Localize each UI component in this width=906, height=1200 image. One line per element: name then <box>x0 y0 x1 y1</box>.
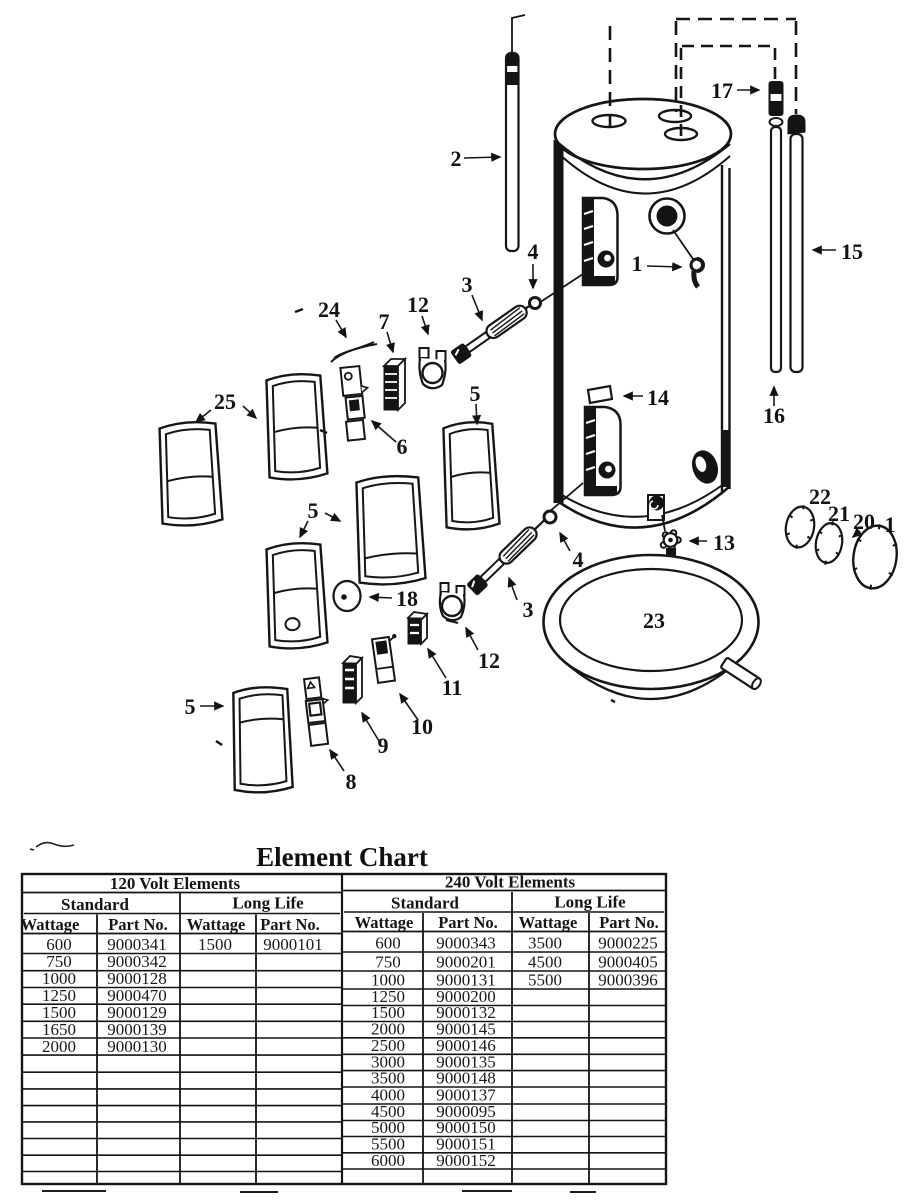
svg-text:10: 10 <box>411 714 433 739</box>
svg-text:Part No.: Part No. <box>438 913 498 932</box>
svg-text:1: 1 <box>885 512 896 537</box>
svg-text:9: 9 <box>378 733 389 758</box>
svg-text:16: 16 <box>763 403 785 428</box>
svg-text:3500: 3500 <box>528 934 562 953</box>
svg-text:9000101: 9000101 <box>263 935 323 954</box>
svg-text:9000396: 9000396 <box>598 971 658 990</box>
svg-text:20: 20 <box>853 509 875 534</box>
svg-text:Standard: Standard <box>61 895 130 914</box>
svg-text:240 Volt Elements: 240 Volt Elements <box>445 873 576 892</box>
svg-text:21: 21 <box>828 501 850 526</box>
svg-text:15: 15 <box>841 239 863 264</box>
svg-text:750: 750 <box>375 953 401 972</box>
svg-text:9000343: 9000343 <box>436 934 496 953</box>
svg-text:1: 1 <box>632 251 643 276</box>
svg-text:4: 4 <box>573 547 584 572</box>
svg-text:5: 5 <box>470 381 481 406</box>
svg-text:23: 23 <box>643 608 665 633</box>
svg-text:Element Chart: Element Chart <box>256 842 428 872</box>
svg-text:6: 6 <box>397 434 408 459</box>
svg-text:Part No.: Part No. <box>260 915 320 934</box>
svg-text:4: 4 <box>528 239 539 264</box>
svg-text:25: 25 <box>214 389 236 414</box>
svg-text:5: 5 <box>185 694 196 719</box>
svg-text:5: 5 <box>308 498 319 523</box>
svg-text:8: 8 <box>346 769 357 794</box>
svg-text:Long Life: Long Life <box>232 894 304 913</box>
svg-text:5500: 5500 <box>528 971 562 990</box>
svg-text:12: 12 <box>478 648 500 673</box>
svg-text:9000130: 9000130 <box>107 1037 167 1056</box>
svg-text:24: 24 <box>318 297 340 322</box>
svg-text:9000201: 9000201 <box>436 953 496 972</box>
svg-text:2: 2 <box>451 146 462 171</box>
svg-text:Part No.: Part No. <box>108 915 168 934</box>
svg-text:13: 13 <box>713 530 735 555</box>
svg-text:Standard: Standard <box>391 894 460 913</box>
svg-text:2000: 2000 <box>42 1037 76 1056</box>
svg-text:Long Life: Long Life <box>554 893 626 912</box>
svg-text:3: 3 <box>462 272 473 297</box>
svg-text:7: 7 <box>379 309 390 334</box>
svg-text:12: 12 <box>407 292 429 317</box>
svg-text:Wattage: Wattage <box>21 915 80 934</box>
svg-text:1500: 1500 <box>198 935 232 954</box>
svg-text:3: 3 <box>523 597 534 622</box>
svg-text:17: 17 <box>711 78 733 103</box>
svg-text:9000225: 9000225 <box>598 934 658 953</box>
svg-text:18: 18 <box>396 586 418 611</box>
svg-text:600: 600 <box>375 934 401 953</box>
svg-text:4500: 4500 <box>528 953 562 972</box>
svg-text:Wattage: Wattage <box>355 913 414 932</box>
svg-text:Wattage: Wattage <box>519 913 578 932</box>
svg-text:Wattage: Wattage <box>187 915 246 934</box>
svg-text:9000152: 9000152 <box>436 1151 496 1170</box>
svg-text:6000: 6000 <box>371 1151 405 1170</box>
svg-text:Part No.: Part No. <box>599 913 659 932</box>
svg-text:9000405: 9000405 <box>598 953 658 972</box>
svg-text:11: 11 <box>442 675 463 700</box>
svg-text:14: 14 <box>647 385 669 410</box>
svg-text:120 Volt Elements: 120 Volt Elements <box>110 874 241 893</box>
